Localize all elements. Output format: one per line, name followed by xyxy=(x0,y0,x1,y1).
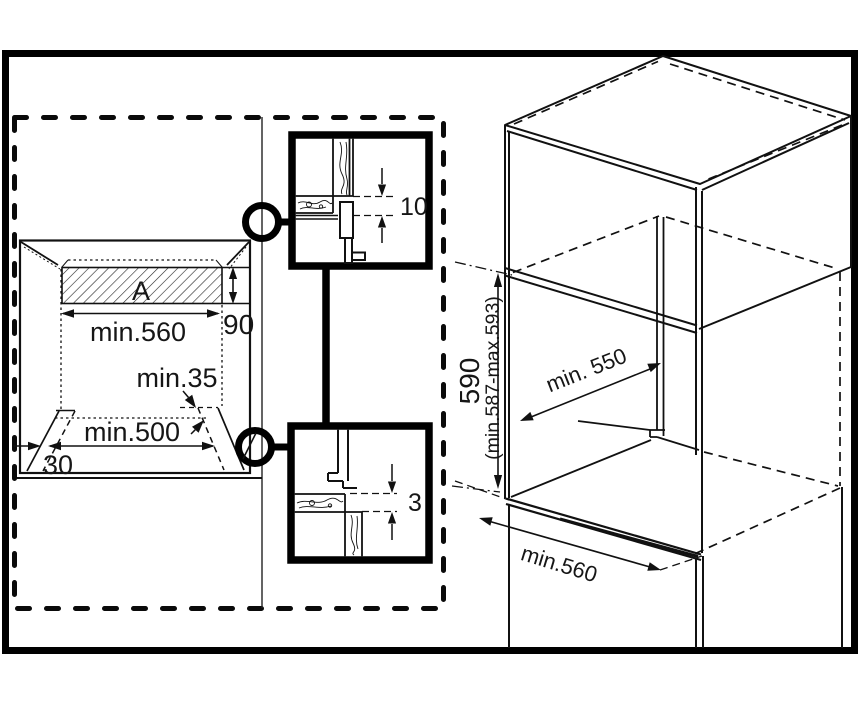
width-top-label: min.560 xyxy=(90,317,186,347)
vent-label: A xyxy=(132,276,150,306)
installation-diagram: A 90 min.560 min.35 min.500 30 xyxy=(0,0,861,705)
vent-height-label: 90 xyxy=(223,309,254,340)
detail-top-gap-label: 10 xyxy=(400,193,428,221)
diagram-canvas: A 90 min.560 min.35 min.500 30 xyxy=(0,0,861,705)
detail-bottom-gap-label: 3 xyxy=(408,489,422,517)
width-bottom-label: min.500 xyxy=(84,417,180,447)
oven-flange xyxy=(340,202,353,238)
plinth-depth-label: 30 xyxy=(43,450,73,480)
height-label: 590 xyxy=(454,358,485,405)
rear-gap-label: min.35 xyxy=(136,363,217,393)
height-range-label: (min.587-max.593) xyxy=(482,296,504,460)
